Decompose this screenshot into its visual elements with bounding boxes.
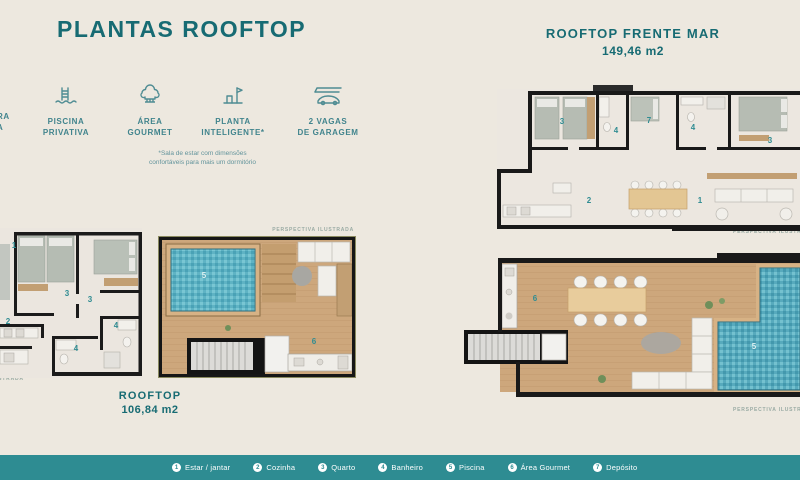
room-number-quarto: 3 (557, 117, 567, 126)
unit-name: ROOFTOP (70, 390, 230, 402)
legend-number-badge: 4 (378, 463, 387, 472)
unit-name: ROOFTOP FRENTE MAR (518, 26, 748, 41)
legend-number-badge: 1 (172, 463, 181, 472)
room-number-cozinha: 2 (3, 317, 13, 326)
room-number-estar: 1 (695, 196, 705, 205)
floorplan-rooftop-terrace (158, 236, 356, 378)
car-garage-icon (280, 84, 376, 108)
amenity-vagas-garagem: 2 VAGAS DE GARAGEM (280, 84, 376, 138)
room-number-banheiro: 4 (71, 344, 81, 353)
legend-number-badge: 2 (253, 463, 262, 472)
room-number-cozinha: 2 (584, 196, 594, 205)
legend-number-badge: 7 (593, 463, 602, 472)
amenity-cutoff: RA A (0, 111, 10, 133)
floorplan-rooftop-lower (0, 228, 142, 378)
legend-item-banheiro: 4 Banheiro (378, 463, 423, 472)
room-number-deposito: 7 (644, 116, 654, 125)
room-number-gourmet: 6 (530, 294, 540, 303)
room-number-piscina: 5 (199, 271, 209, 280)
legend-item-piscina: 5 Piscina (446, 463, 485, 472)
room-number-quarto: 3 (765, 136, 775, 145)
legend-item-deposito: 7 Depósito (593, 463, 637, 472)
room-number-banheiro: 4 (111, 321, 121, 330)
pool-ladder-icon (18, 84, 114, 108)
floorplan-frente-mar-main (495, 85, 800, 237)
legend-bar: 1 Estar / jantar 2 Cozinha 3 Quarto 4 Ba… (0, 455, 800, 480)
unit-title-rooftop: ROOFTOP 106,84 m2 (70, 390, 230, 416)
room-number-banheiro: 4 (611, 126, 621, 135)
amenity-area-gourmet: ÁREA GOURMET (102, 84, 198, 138)
floorplan-frente-mar-terrace (462, 248, 800, 412)
smart-plan-icon (185, 84, 281, 108)
room-number-gourmet: 6 (309, 337, 319, 346)
legend-row: 1 Estar / jantar 2 Cozinha 3 Quarto 4 Ba… (172, 455, 637, 480)
room-number-quarto: 3 (85, 295, 95, 304)
legend-number-badge: 6 (508, 463, 517, 472)
unit-title-frente-mar: ROOFTOP FRENTE MAR 149,46 m2 (518, 26, 748, 58)
room-number-quarto: 3 (62, 289, 72, 298)
perspectiva-label: PERSPECTIVA ILUSTRADA (262, 227, 354, 233)
page-title: PLANTAS ROOFTOP (57, 16, 306, 43)
legend-item-area-gourmet: 6 Área Gourmet (508, 463, 571, 472)
unit-area: 106,84 m2 (70, 404, 230, 416)
room-number-piscina: 5 (749, 342, 759, 351)
amenity-piscina-privativa: PISCINA PRIVATIVA (18, 84, 114, 138)
legend-item-cozinha: 2 Cozinha (253, 463, 295, 472)
legend-item-estar-jantar: 1 Estar / jantar (172, 463, 230, 472)
legend-number-badge: 3 (318, 463, 327, 472)
unit-area: 149,46 m2 (518, 44, 748, 58)
legend-item-quarto: 3 Quarto (318, 463, 355, 472)
page: PLANTAS ROOFTOP ROOFTOP FRENTE MAR 149,4… (0, 0, 800, 480)
amenity-footnote: *Sala de estar com dimensões confortávei… (90, 149, 315, 167)
room-number-estar: 1 (9, 241, 19, 250)
room-number-banheiro: 4 (688, 123, 698, 132)
legend-number-badge: 5 (446, 463, 455, 472)
chef-hat-icon (102, 84, 198, 108)
amenity-planta-inteligente: PLANTA INTELIGENTE* (185, 84, 281, 138)
